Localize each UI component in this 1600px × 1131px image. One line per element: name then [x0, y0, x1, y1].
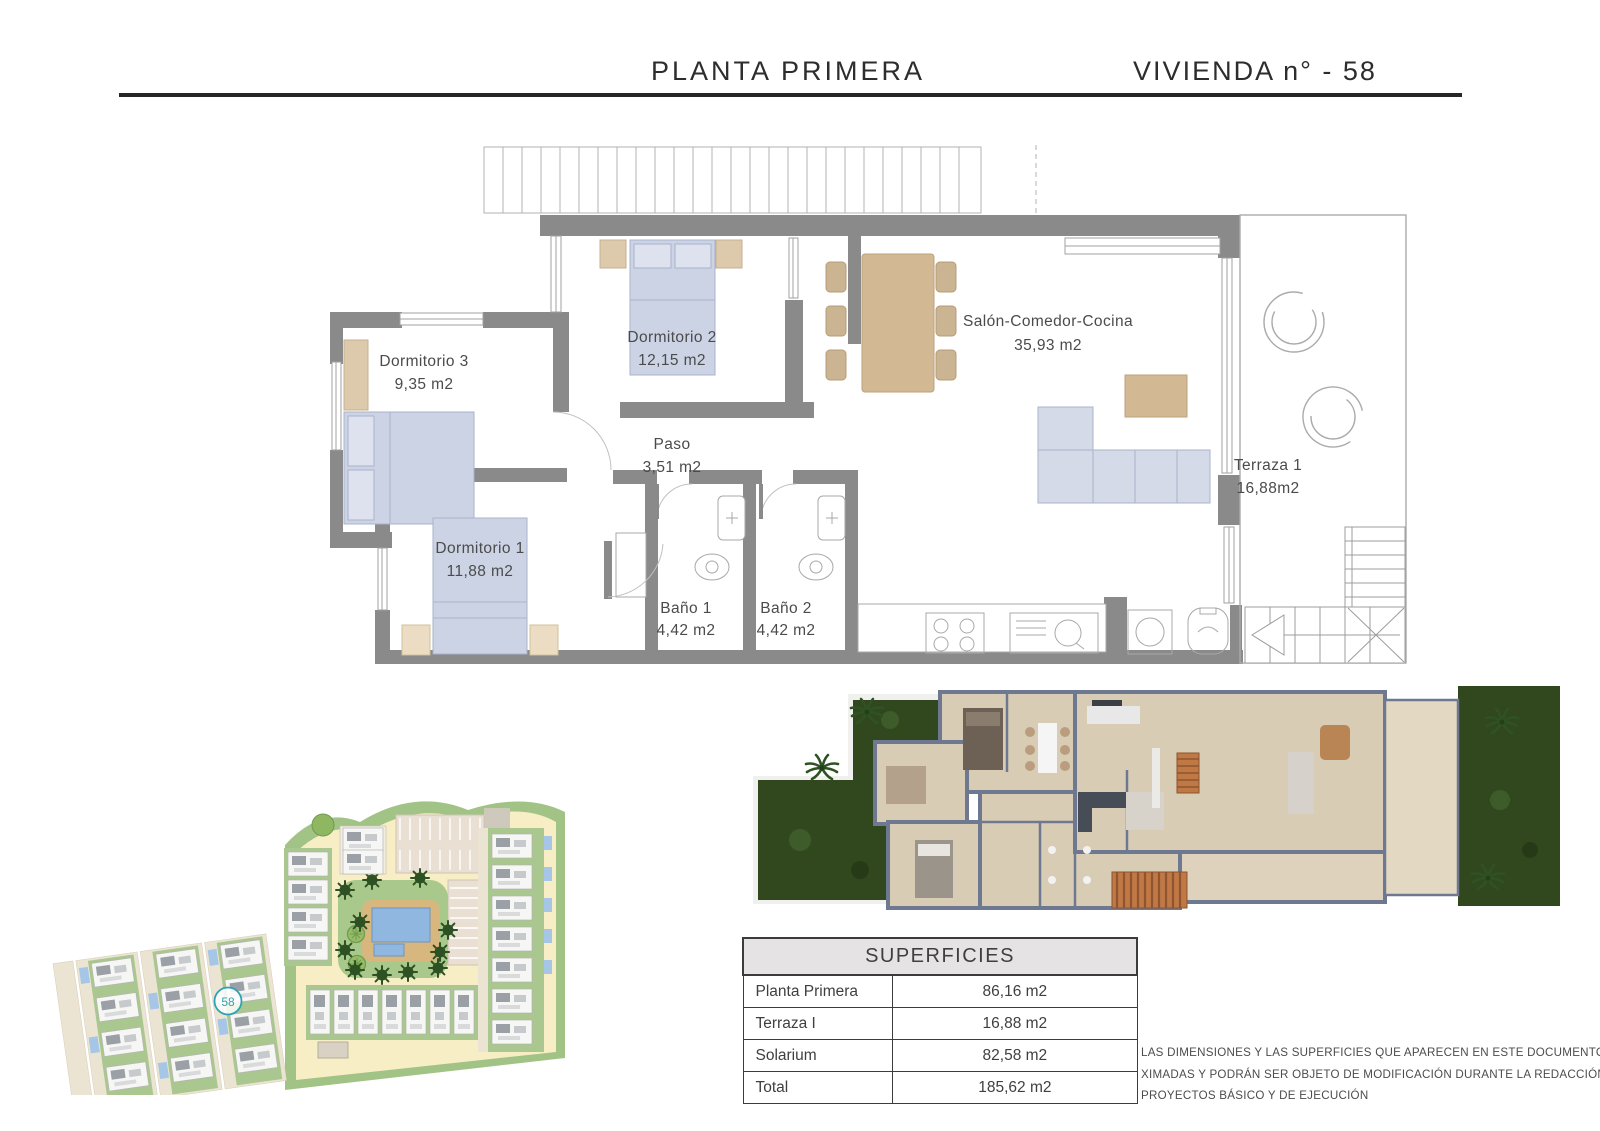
terrace-sofa — [1288, 752, 1314, 814]
room-label-terraza-1: Terraza 1 — [1234, 457, 1302, 474]
table-row: Planta Primera 86,16 m2 — [743, 975, 1137, 1008]
kitchen-island — [1087, 706, 1140, 724]
site-plan: 58 — [40, 790, 665, 1095]
tv-unit — [1125, 375, 1187, 417]
rattan-chair — [1320, 725, 1350, 760]
superficies-table: SUPERFICIES Planta Primera 86,16 m2 Terr… — [742, 937, 1138, 1104]
unit-marker: 58 — [215, 988, 242, 1015]
washing-machine-icon — [1128, 610, 1172, 654]
room-area-paso: 3,51 m2 — [643, 459, 702, 476]
room-area-salon: 35,93 m2 — [1014, 337, 1082, 354]
room-label-salon: Salón-Comedor-Cocina — [963, 313, 1133, 330]
table-row: Terraza I 16,88 m2 — [743, 1008, 1137, 1040]
main-floor-plan: Dormitorio 3 9,35 m2 Dormitorio 2 12,15 … — [320, 128, 1420, 688]
pool-step — [374, 944, 404, 956]
room-area-dormitorio-3: 9,35 m2 — [395, 376, 454, 393]
bathroom-fixtures — [695, 496, 845, 580]
room-area-bano-2: 4,42 m2 — [757, 622, 816, 639]
nightstand — [402, 625, 430, 655]
row-label: Total — [743, 1072, 893, 1104]
closet — [616, 533, 646, 597]
water-heater-icon — [1188, 608, 1228, 654]
room-label-dormitorio-1: Dormitorio 1 — [435, 540, 524, 557]
pergola-hatch — [484, 145, 1036, 213]
room-area-dormitorio-2: 12,15 m2 — [638, 352, 706, 369]
render-3d — [745, 675, 1560, 920]
sofa — [1038, 407, 1210, 503]
room-label-dormitorio-3: Dormitorio 3 — [379, 353, 468, 370]
pool — [372, 908, 430, 942]
pool-courtyard — [336, 869, 457, 984]
wood-stairs — [1177, 753, 1199, 793]
disclaimer: LAS DIMENSIONES Y LAS SUPERFICIES QUE AP… — [1141, 1042, 1600, 1107]
tv-sideboard — [1152, 748, 1160, 808]
staircase — [1245, 527, 1405, 663]
nightstand — [600, 240, 626, 268]
bed-dormitorio-1 — [433, 518, 527, 654]
row-label: Terraza I — [743, 1008, 893, 1040]
plant-icon — [1264, 292, 1324, 352]
dining-set — [1025, 723, 1070, 773]
row-value: 185,62 m2 — [893, 1072, 1137, 1104]
wardrobe — [344, 340, 368, 410]
nightstand — [716, 240, 742, 268]
row-value: 16,88 m2 — [893, 1008, 1137, 1040]
room-area-dormitorio-1: 11,88 m2 — [447, 563, 514, 580]
bed-dormitorio-3 — [344, 412, 474, 524]
unit-number-title: VIVIENDA n° - 58 — [1040, 56, 1470, 87]
unit-marker-number: 58 — [221, 995, 235, 1009]
disclaimer-line: LAS DIMENSIONES Y LAS SUPERFICIES QUE AP… — [1141, 1042, 1600, 1064]
room-label-bano-2: Baño 2 — [760, 600, 812, 617]
round-tree — [312, 814, 334, 836]
room-label-paso: Paso — [654, 436, 691, 453]
nightstand — [530, 625, 558, 655]
table-row: Total 185,62 m2 — [743, 1072, 1137, 1104]
table-title: SUPERFICIES — [743, 938, 1137, 975]
room-area-terraza-1: 16,88m2 — [1236, 480, 1299, 497]
row-label: Solarium — [743, 1040, 893, 1072]
row-value: 82,58 m2 — [893, 1040, 1137, 1072]
dining-table — [826, 254, 956, 392]
plant-icon — [1298, 382, 1368, 452]
room-label-dormitorio-2: Dormitorio 2 — [627, 329, 716, 346]
row-value: 86,16 m2 — [893, 975, 1137, 1008]
disclaimer-line: PROYECTOS BÁSICO Y DE EJECUCIÓN — [1141, 1085, 1600, 1107]
page-title: PLANTA PRIMERA — [558, 56, 1018, 87]
room-area-bano-1: 4,42 m2 — [657, 622, 716, 639]
disclaimer-line: XIMADAS Y PODRÁN SER OBJETO DE MODIFICAC… — [1141, 1064, 1600, 1086]
entrance — [318, 1042, 348, 1058]
laundry — [1128, 608, 1228, 654]
header-rule — [119, 93, 1462, 97]
table-row: Solarium 82,58 m2 — [743, 1040, 1137, 1072]
left-wing — [53, 934, 287, 1095]
row-label: Planta Primera — [743, 975, 893, 1008]
plan-sheet: PLANTA PRIMERA VIVIENDA n° - 58 — [0, 0, 1600, 1131]
pergola-slats — [1112, 872, 1187, 908]
kitchen-counter — [858, 604, 1106, 653]
room-label-bano-1: Baño 1 — [660, 600, 712, 617]
